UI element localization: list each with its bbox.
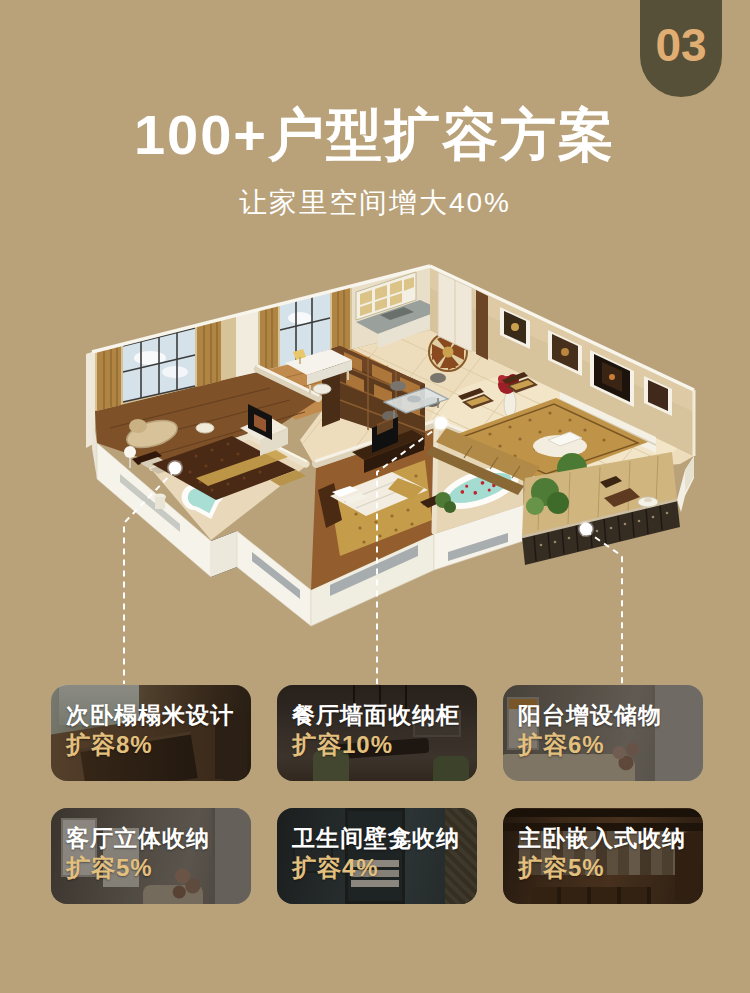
plan-card-balcony: 阳台增设储物 扩容6% bbox=[503, 685, 703, 781]
card-title: 餐厅墙面收纳柜 bbox=[292, 701, 460, 729]
plan-card-living: 客厅立体收纳 扩容5% bbox=[51, 808, 251, 904]
card-expansion-value: 扩容10% bbox=[292, 731, 460, 759]
card-expansion-value: 扩容6% bbox=[518, 731, 662, 759]
plan-card-closet: 主卧嵌入式收纳 扩容5% bbox=[503, 808, 703, 904]
card-expansion-value: 扩容5% bbox=[66, 854, 210, 882]
poster-page: { "page": { "badge_number": "03", "title… bbox=[0, 0, 750, 993]
card-expansion-value: 扩容4% bbox=[292, 854, 460, 882]
card-title: 阳台增设储物 bbox=[518, 701, 662, 729]
card-expansion-value: 扩容5% bbox=[518, 854, 686, 882]
plan-card-bathroom: 卫生间壁龛收纳 扩容4% bbox=[277, 808, 477, 904]
card-title: 主卧嵌入式收纳 bbox=[518, 824, 686, 852]
card-title: 卫生间壁龛收纳 bbox=[292, 824, 460, 852]
plan-cards-grid: 次卧榻榻米设计 扩容8% 餐厅墙面收纳柜 扩容10% 阳台增设储物 扩容6% 客… bbox=[51, 685, 703, 904]
marker-dot-2-core bbox=[435, 417, 448, 430]
leader-line-3 bbox=[586, 531, 622, 684]
card-expansion-value: 扩容8% bbox=[66, 731, 234, 759]
card-title: 客厅立体收纳 bbox=[66, 824, 210, 852]
card-title: 次卧榻榻米设计 bbox=[66, 701, 234, 729]
plan-card-tatami: 次卧榻榻米设计 扩容8% bbox=[51, 685, 251, 781]
marker-dot-3-core bbox=[580, 523, 593, 536]
marker-dot-1-core bbox=[169, 462, 182, 475]
plan-card-dining: 餐厅墙面收纳柜 扩容10% bbox=[277, 685, 477, 781]
